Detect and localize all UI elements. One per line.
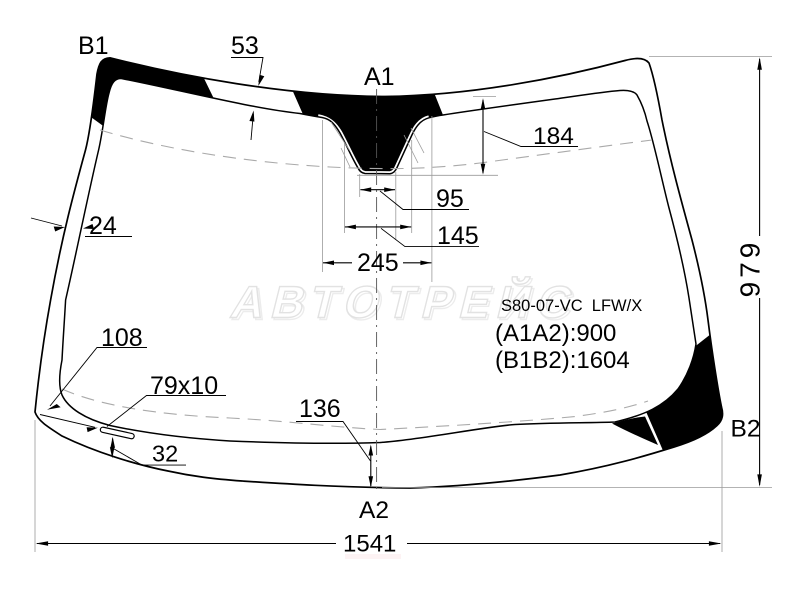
svg-text:184: 184 [533, 123, 574, 150]
svg-text:S80-07-VC LFW/X: S80-07-VC LFW/X [501, 297, 642, 315]
svg-text:(B1B2):1604: (B1B2):1604 [495, 347, 630, 374]
svg-text:(A1A2):900: (A1A2):900 [495, 320, 616, 347]
svg-text:145: 145 [437, 222, 479, 250]
svg-text:95: 95 [436, 185, 464, 213]
svg-text:245: 245 [357, 249, 399, 277]
svg-text:A2: A2 [359, 497, 389, 524]
svg-text:1541: 1541 [343, 531, 396, 558]
svg-text:B1: B1 [78, 32, 109, 60]
svg-text:136: 136 [299, 395, 341, 423]
svg-text:A1: A1 [364, 63, 395, 91]
svg-text:32: 32 [152, 441, 178, 467]
svg-text:B2: B2 [731, 416, 761, 443]
svg-text:24: 24 [89, 212, 117, 240]
svg-text:979: 979 [735, 239, 766, 298]
svg-text:53: 53 [231, 32, 259, 60]
